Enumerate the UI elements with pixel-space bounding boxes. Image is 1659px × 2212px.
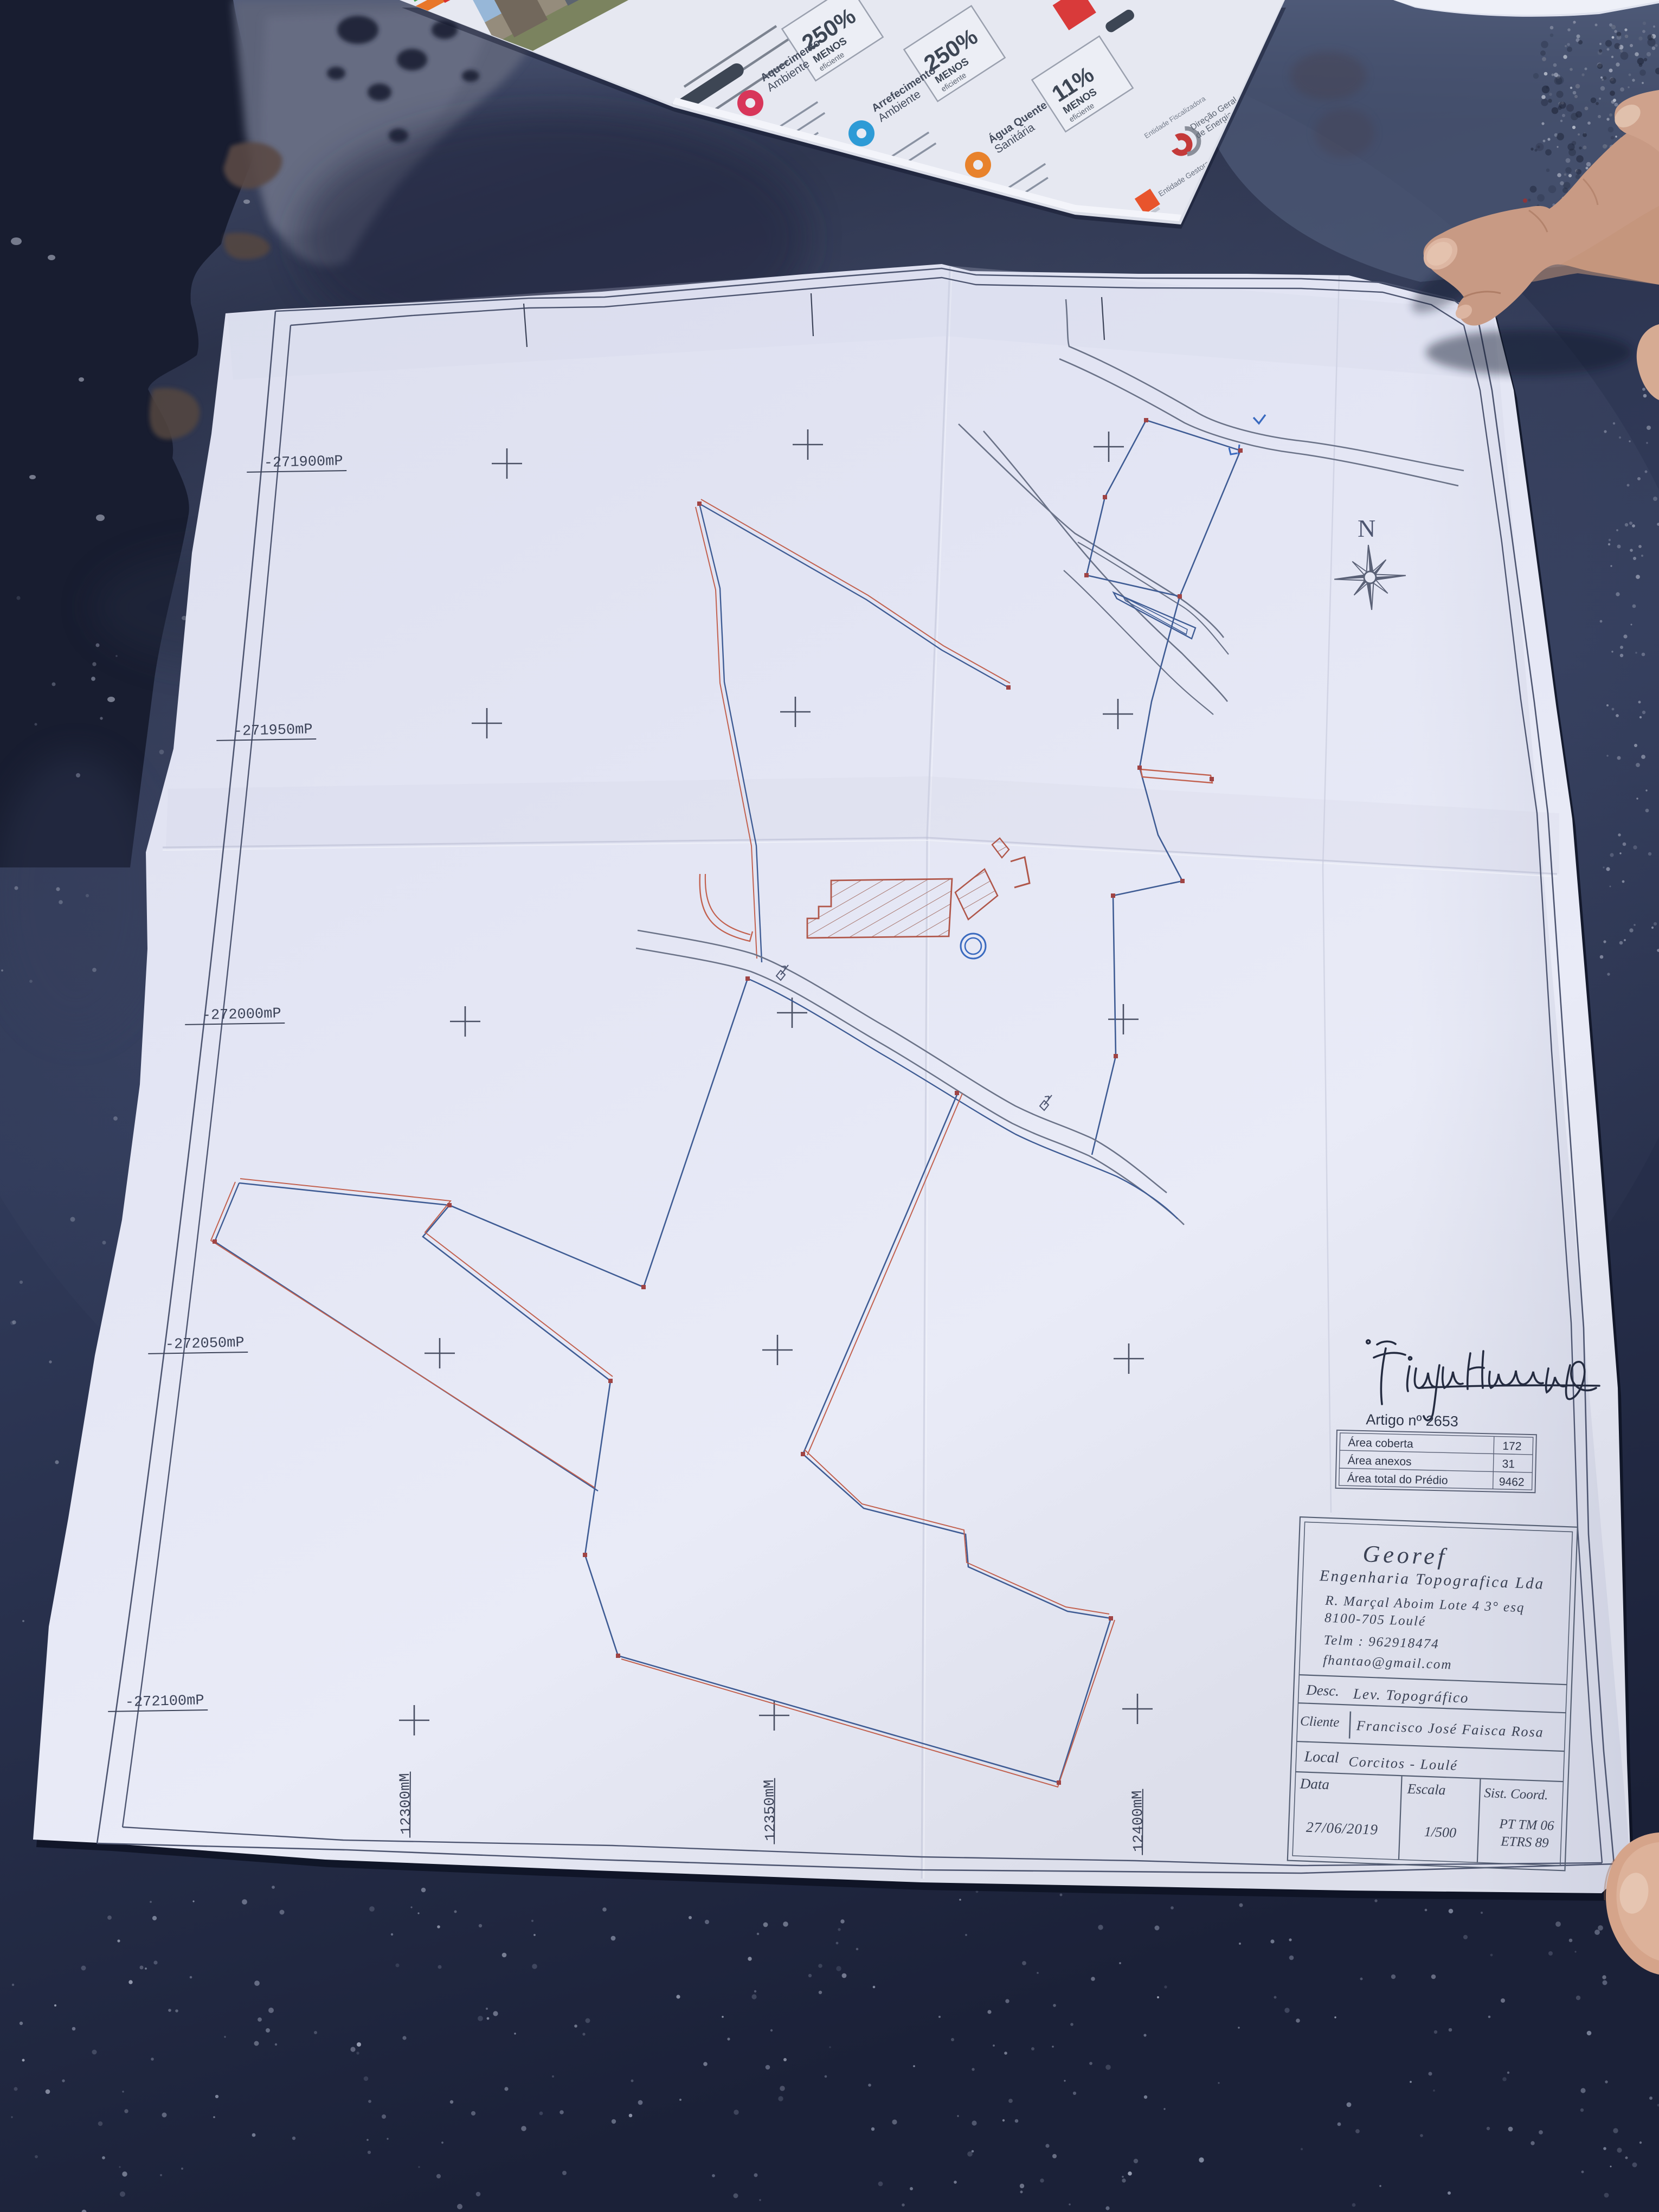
svg-text:Data: Data [1299,1775,1329,1792]
svg-text:Cliente: Cliente [1300,1714,1340,1730]
svg-text:-271900mP: -271900mP [263,453,343,472]
svg-text:12350mM: 12350mM [762,1779,780,1841]
svg-text:9462: 9462 [1499,1476,1525,1489]
svg-text:N: N [1358,515,1375,542]
svg-text:172: 172 [1502,1440,1522,1453]
svg-text:Local: Local [1303,1748,1339,1766]
svg-text:-272050mP: -272050mP [165,1335,245,1353]
svg-text:12400mM: 12400mM [1130,1790,1148,1852]
svg-text:12300mM: 12300mM [397,1773,415,1835]
svg-text:Área anexos: Área anexos [1347,1454,1411,1468]
svg-text:27/06/2019: 27/06/2019 [1306,1819,1379,1838]
svg-text:PT TM 06: PT TM 06 [1499,1817,1554,1834]
svg-text:Sist. Coord.: Sist. Coord. [1484,1786,1548,1803]
svg-text:31: 31 [1502,1458,1515,1471]
svg-text:ETRS 89: ETRS 89 [1500,1834,1549,1850]
svg-text:-271950mP: -271950mP [233,722,313,740]
svg-text:Área total do Prédio: Área total do Prédio [1347,1472,1448,1487]
svg-text:-272100mP: -272100mP [125,1693,204,1711]
svg-text:-272000mP: -272000mP [202,1006,281,1024]
svg-text:Georef: Georef [1362,1540,1448,1570]
svg-text:Escala: Escala [1406,1781,1446,1798]
svg-text:1/500: 1/500 [1424,1824,1456,1841]
svg-text:Área coberta: Área coberta [1348,1436,1413,1450]
svg-text:Desc.: Desc. [1306,1682,1340,1699]
svg-text:Artigo nº 2653: Artigo nº 2653 [1366,1411,1458,1430]
